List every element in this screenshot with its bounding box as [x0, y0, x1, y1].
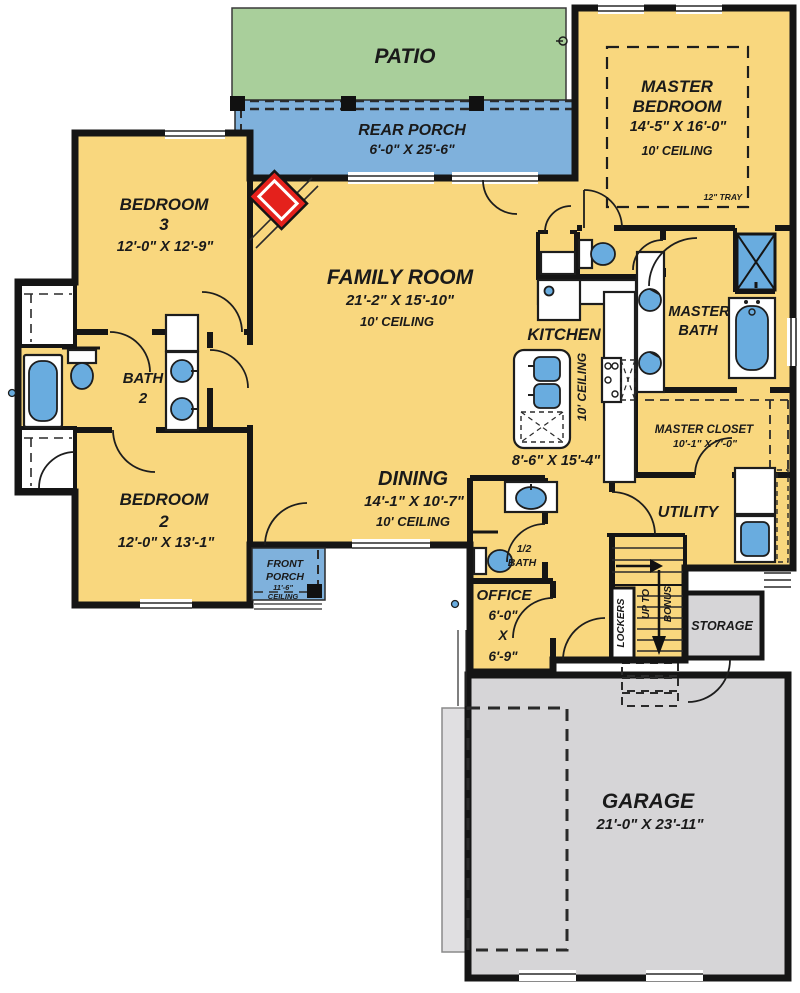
master-bath-label2: BATH	[678, 323, 718, 339]
dining-ceiling: 10' CEILING	[376, 514, 450, 529]
bedroom2-label1: BEDROOM	[120, 490, 210, 509]
master-tub	[729, 298, 775, 378]
garage-door-opening	[519, 970, 576, 981]
dryer	[735, 468, 775, 514]
porch-column	[341, 96, 356, 111]
half-bath-label1: 1/2	[517, 543, 532, 555]
window	[452, 172, 538, 184]
front-porch-ceil1: 11'-6"	[273, 583, 293, 592]
master-bedroom-dims: 14'-5" X 16'-0"	[630, 119, 728, 135]
bath2-label2: 2	[138, 390, 148, 407]
dining-label: DINING	[378, 468, 448, 490]
pantry-shelf	[541, 252, 575, 274]
window	[348, 172, 434, 184]
porch-column	[469, 96, 484, 111]
window	[352, 539, 430, 551]
kitchen-label: KITCHEN	[527, 326, 601, 344]
kitchen-dims: 8'-6" X 15'-4"	[512, 453, 601, 469]
prep-sink	[545, 287, 554, 296]
window	[140, 599, 192, 611]
office-label: OFFICE	[477, 587, 533, 604]
window	[787, 318, 799, 366]
family-room-ceiling: 10' CEILING	[360, 314, 434, 329]
porch-column	[307, 584, 322, 598]
washer-drum	[741, 522, 769, 556]
porch-column	[230, 96, 245, 111]
window	[165, 127, 225, 139]
sink	[171, 360, 193, 382]
office-dim1: 6'-0"	[488, 608, 518, 623]
rear-porch-slab	[235, 100, 578, 180]
master-bedroom-label1: MASTER	[641, 77, 714, 96]
shower	[737, 234, 775, 290]
toilet-bowl	[591, 243, 615, 265]
kitchen-corner-counter	[538, 280, 580, 320]
stairs-label1: UP TO	[641, 589, 652, 619]
bathtub-water	[29, 361, 57, 421]
rear-porch-dims: 6'-0" X 25'-6"	[369, 141, 455, 157]
toilet-tank	[68, 350, 96, 363]
garage-dims: 21'-0" X 23'-11"	[596, 816, 705, 833]
bedroom2-label2: 2	[158, 512, 169, 531]
master-bedroom-ceiling: 10' CEILING	[641, 144, 712, 158]
tray-label: 12" TRAY	[704, 192, 744, 202]
front-porch-ceil2: CEILING	[268, 592, 299, 601]
family-room-label: FAMILY ROOM	[327, 266, 474, 289]
lockers-label: LOCKERS	[616, 598, 627, 647]
toilet-bowl	[71, 363, 93, 389]
dining-dims: 14'-1" X 10'-7"	[364, 493, 465, 510]
family-room-dims: 21'-2" X 15'-10"	[345, 292, 455, 309]
bedroom3-label2: 3	[159, 215, 169, 234]
front-porch-label1: FRONT	[267, 558, 305, 570]
stairs-label2: BONUS	[663, 586, 674, 622]
front-porch-label2: PORCH	[266, 571, 304, 583]
bedroom3-dims: 12'-0" X 12'-9"	[117, 239, 215, 255]
patio-label: PATIO	[374, 45, 435, 68]
entry-light-fixture	[452, 601, 459, 608]
half-bath-label2: BATH	[508, 557, 537, 569]
storage-room	[683, 573, 791, 658]
rear-porch-label: REAR PORCH	[358, 122, 466, 139]
kitchen-ceiling: 10' CEILING	[575, 353, 589, 421]
island-sink	[534, 357, 560, 381]
linen-closet	[166, 315, 198, 351]
floor-plan: PATIO REAR PORCH 6'-0" X 25'-6" MASTER B…	[0, 0, 800, 993]
bath2-label1: BATH	[123, 370, 165, 387]
sink	[171, 398, 193, 420]
side-light-fixture	[9, 390, 16, 397]
utility-label: UTILITY	[658, 504, 720, 521]
bedroom3-label1: BEDROOM	[120, 195, 210, 214]
garage-door-opening	[646, 970, 703, 981]
island-sink	[534, 384, 560, 408]
office-dim2: X	[497, 628, 508, 643]
window	[676, 2, 722, 14]
storage-label: STORAGE	[691, 619, 753, 633]
master-closet-label: MASTER CLOSET	[655, 424, 754, 436]
master-bath-label1: MASTER	[668, 304, 730, 320]
bedroom2-dims: 12'-0" X 13'-1"	[118, 535, 216, 551]
master-bedroom-label2: BEDROOM	[633, 97, 723, 116]
toilet-tank	[579, 240, 592, 268]
office-dim3: 6'-9"	[488, 649, 518, 664]
toilet-tank	[474, 548, 486, 574]
water-closet-fixtures	[579, 240, 615, 268]
sink	[516, 487, 546, 509]
garage-label: GARAGE	[602, 790, 695, 813]
master-closet-dims: 10'-1" X 7'-0"	[673, 438, 738, 450]
window	[598, 2, 644, 14]
